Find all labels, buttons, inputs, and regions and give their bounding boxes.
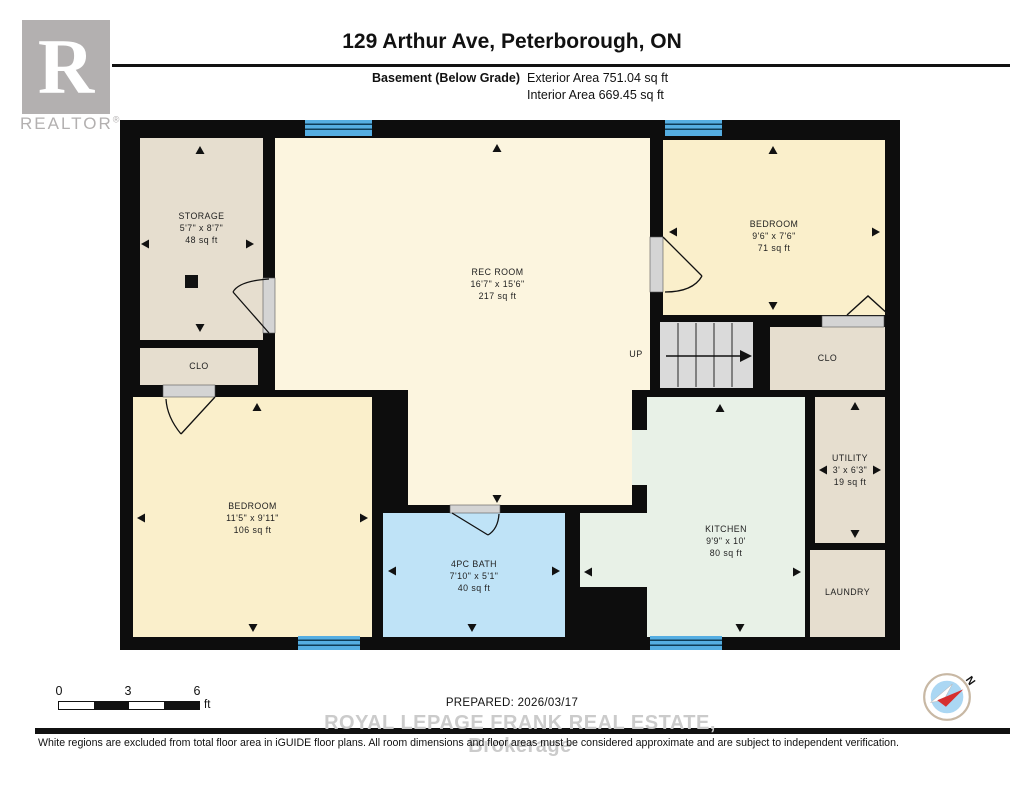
room-label: REC ROOM 16'7" x 15'6" 217 sq ft	[345, 266, 650, 302]
scale-tick-6: 6	[189, 684, 205, 698]
room-laundry: LAUNDRY	[810, 550, 885, 637]
door-sill	[650, 237, 663, 292]
window-icon	[298, 636, 360, 650]
brokerage-watermark: ROYAL LEPAGE FRANK REAL ESTATE, Brokerag…	[285, 712, 755, 758]
room-storage: STORAGE 5'7" x 8'7" 48 sq ft	[140, 138, 263, 340]
room-label: 4PC BATH 7'10" x 5'1" 40 sq ft	[383, 558, 565, 594]
room-label: BEDROOM 11'5" x 9'11" 106 sq ft	[133, 500, 372, 536]
room-bedroom-topright: BEDROOM 9'6" x 7'6" 71 sq ft	[663, 140, 885, 315]
title-divider	[112, 64, 1010, 67]
room-label: KITCHEN 9'9" x 10' 80 sq ft	[647, 523, 805, 559]
room-label: CLO	[770, 352, 885, 364]
room-kitchen: KITCHEN 9'9" x 10' 80 sq ft	[647, 397, 805, 637]
door-sill	[450, 505, 500, 513]
window-icon	[665, 120, 722, 136]
room-closet-left: CLO	[140, 348, 258, 385]
room-bedroom-bottomleft: BEDROOM 11'5" x 9'11" 106 sq ft	[133, 397, 372, 637]
room-rec: REC ROOM 16'7" x 15'6" 217 sq ft	[275, 138, 650, 390]
room-kitchen-extension	[580, 513, 647, 587]
scale-tick-0: 0	[51, 684, 67, 698]
floorplan-page: R REALTOR® 129 Arthur Ave, Peterborough,…	[0, 0, 1024, 791]
room-rec-lower	[408, 385, 632, 505]
window-icon	[650, 636, 722, 650]
door-sill	[163, 385, 215, 397]
floor-label: Basement (Below Grade)	[240, 71, 520, 85]
page-title: 129 Arthur Ave, Peterborough, ON	[0, 30, 1024, 54]
room-utility: UTILITY 3' x 6'3" 19 sq ft	[815, 397, 885, 543]
stairs-up-label: UP	[618, 349, 654, 359]
realtor-wordmark: REALTOR®	[20, 114, 121, 134]
floorplan: STORAGE 5'7" x 8'7" 48 sq ft CLO REC ROO…	[120, 120, 900, 650]
kitchen-doorway-opening	[632, 430, 647, 485]
room-label: CLO	[140, 360, 258, 372]
interior-area: Interior Area 669.45 sq ft	[527, 88, 664, 102]
room-label: UTILITY 3' x 6'3" 19 sq ft	[815, 452, 885, 488]
disclaimer-text: White regions are excluded from total fl…	[38, 737, 899, 749]
room-bath: 4PC BATH 7'10" x 5'1" 40 sq ft	[383, 513, 565, 637]
room-label: STORAGE 5'7" x 8'7" 48 sq ft	[140, 210, 263, 246]
window-icon	[305, 120, 372, 136]
scale-tick-3: 3	[120, 684, 136, 698]
prepared-date: PREPARED: 2026/03/17	[0, 697, 1024, 709]
room-stairs	[660, 322, 753, 388]
door-sill	[263, 278, 275, 333]
closet-sill	[822, 316, 884, 327]
room-label: LAUNDRY	[810, 586, 885, 598]
room-label: BEDROOM 9'6" x 7'6" 71 sq ft	[663, 218, 885, 254]
room-closet-right: CLO	[770, 327, 885, 390]
exterior-area: Exterior Area 751.04 sq ft	[527, 71, 668, 85]
